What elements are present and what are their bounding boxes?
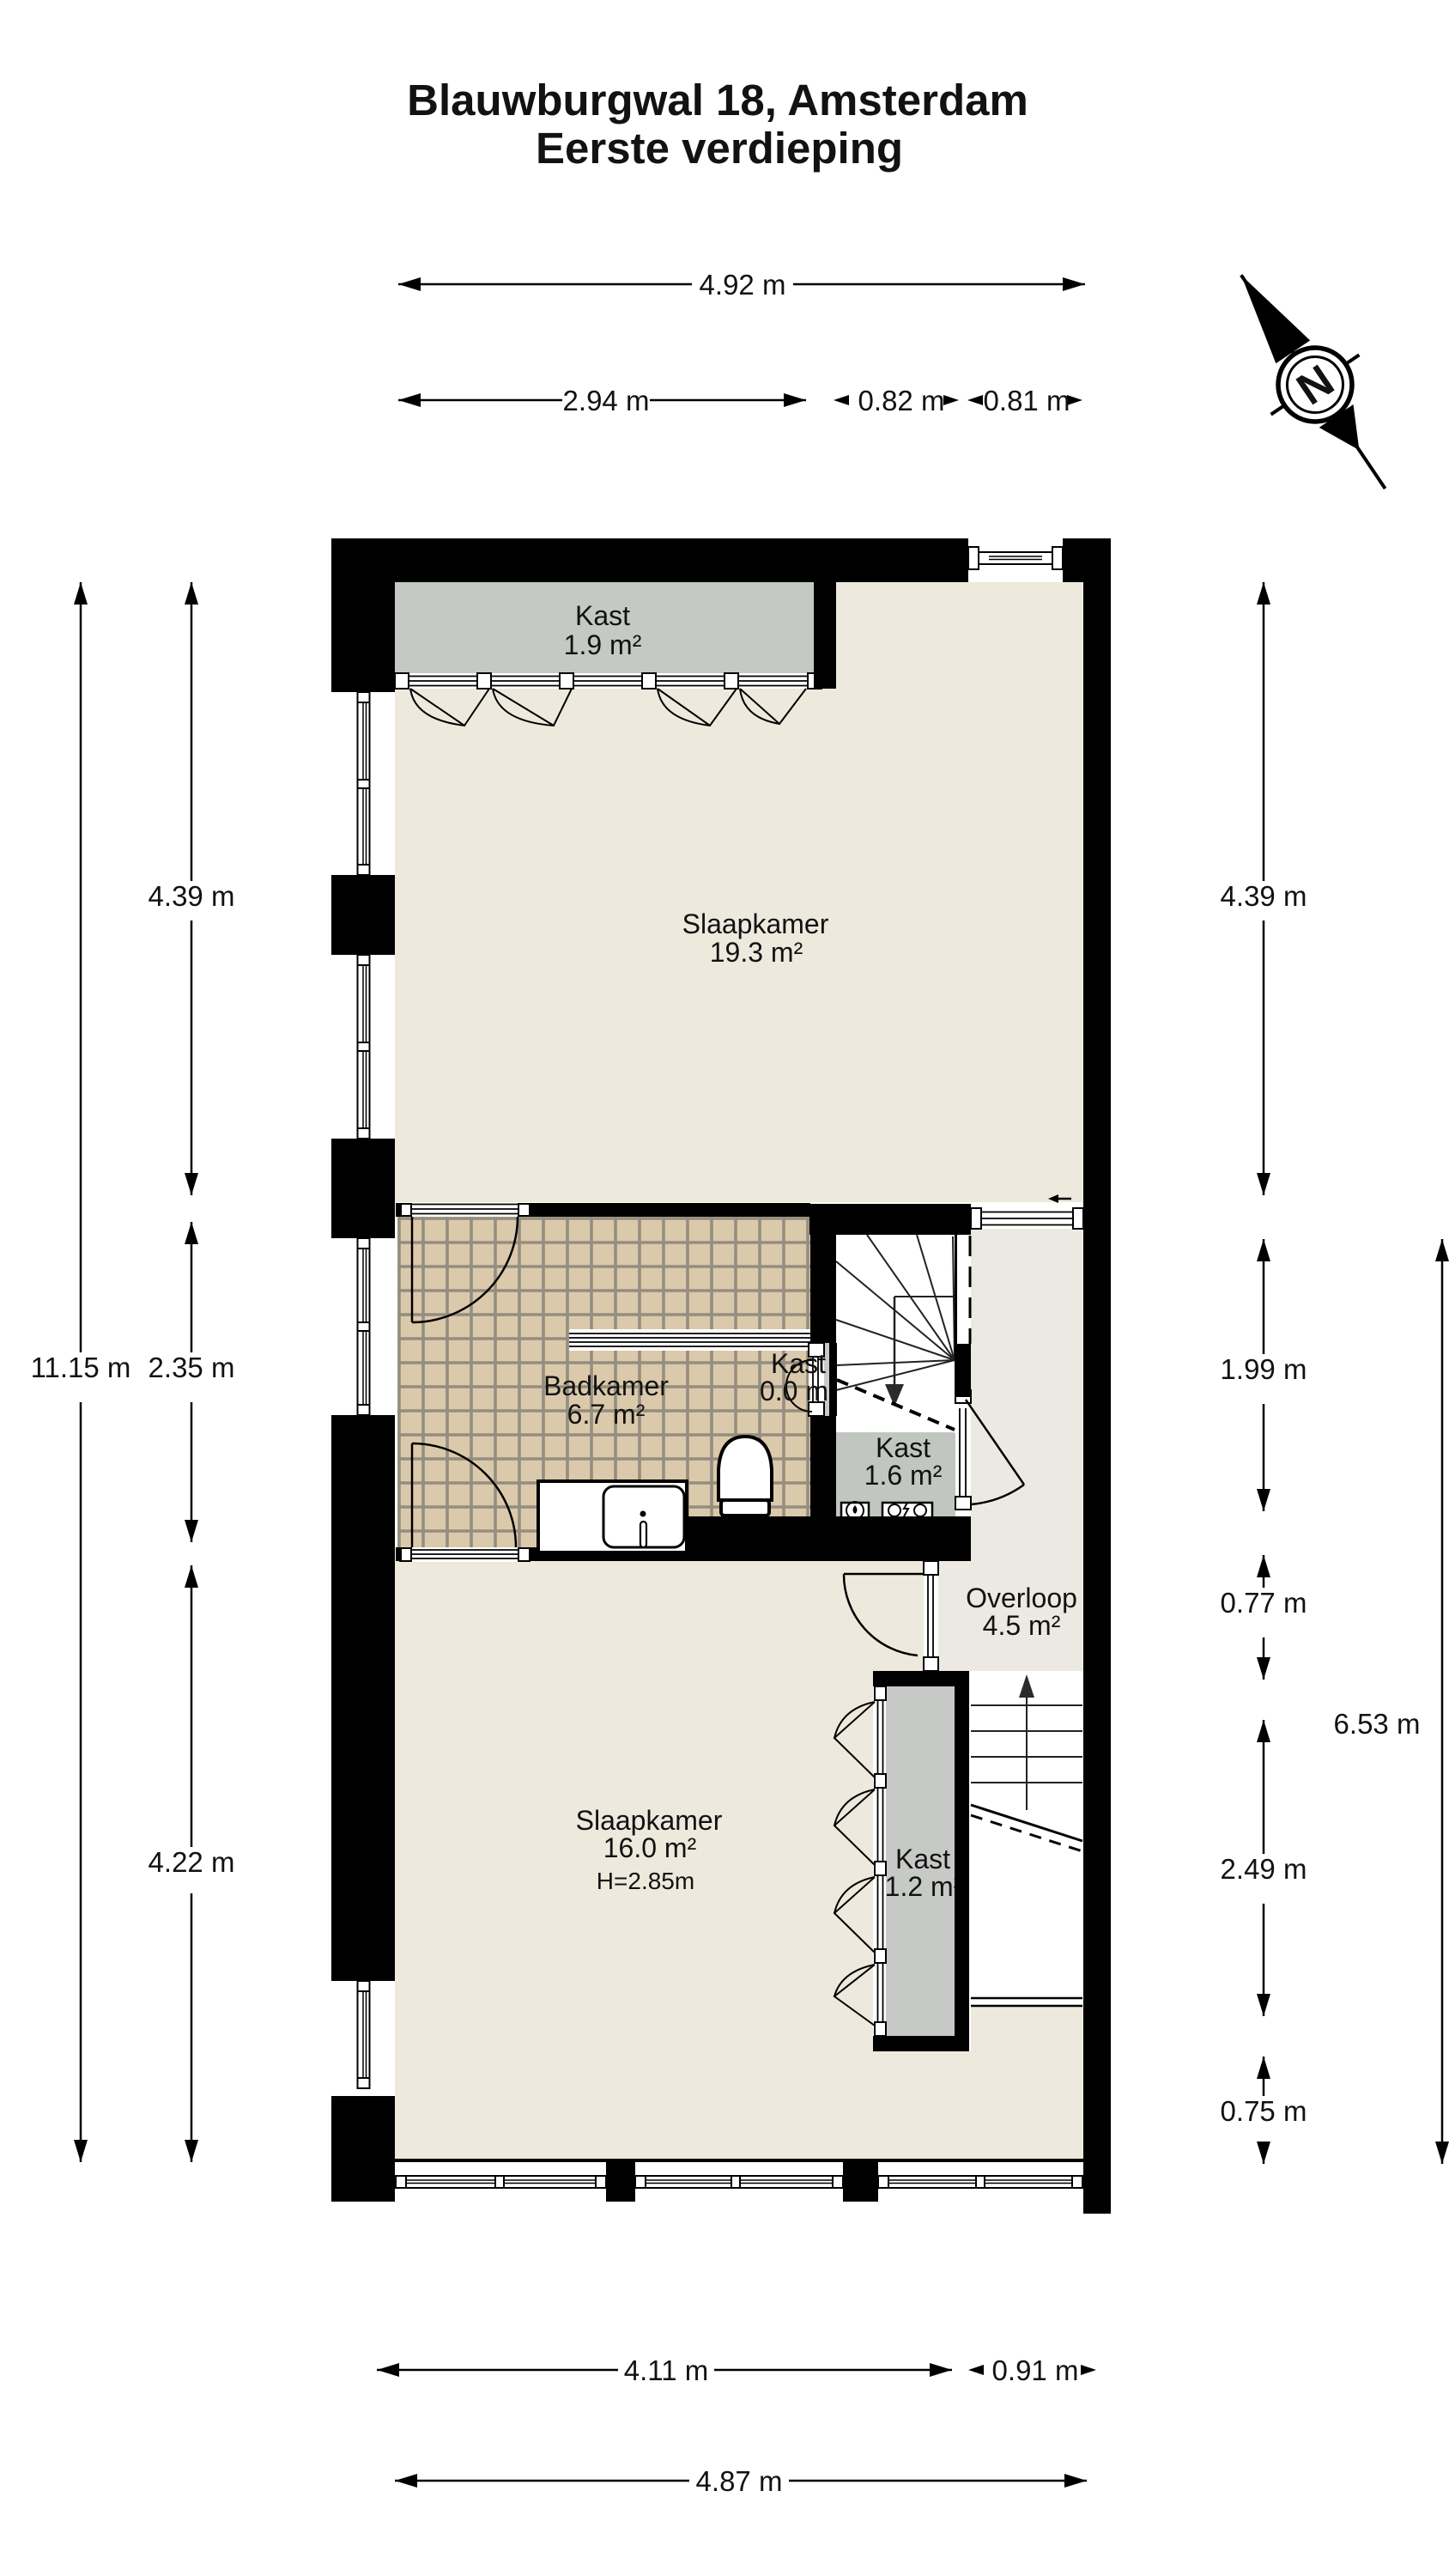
svg-text:Blauwburgwal 18, Amsterdam: Blauwburgwal 18, Amsterdam	[407, 76, 1028, 125]
svg-text:6.7 m²: 6.7 m²	[567, 1399, 646, 1430]
svg-text:0.77 m: 0.77 m	[1221, 1587, 1307, 1619]
svg-text:1.6 m²: 1.6 m²	[864, 1460, 943, 1491]
svg-text:Badkamer: Badkamer	[543, 1370, 669, 1401]
svg-text:0.0 m: 0.0 m	[760, 1376, 828, 1406]
svg-text:0.82 m: 0.82 m	[858, 385, 945, 416]
svg-text:H=2.85m: H=2.85m	[597, 1868, 694, 1894]
svg-text:19.3 m²: 19.3 m²	[710, 937, 803, 968]
svg-text:4.92 m: 4.92 m	[700, 269, 786, 301]
svg-text:4.5 m²: 4.5 m²	[983, 1610, 1061, 1641]
svg-text:2.49 m: 2.49 m	[1221, 1853, 1307, 1885]
svg-text:2.94 m: 2.94 m	[563, 385, 650, 416]
svg-text:Overloop: Overloop	[966, 1583, 1077, 1613]
svg-text:0.91 m: 0.91 m	[992, 2354, 1079, 2386]
svg-text:4.87 m: 4.87 m	[696, 2465, 783, 2497]
svg-text:4.22 m: 4.22 m	[149, 1846, 235, 1878]
svg-text:1.99 m: 1.99 m	[1221, 1353, 1307, 1385]
svg-text:Kast: Kast	[771, 1348, 826, 1379]
svg-text:Eerste verdieping: Eerste verdieping	[536, 124, 903, 173]
svg-text:2.35 m: 2.35 m	[149, 1352, 235, 1383]
svg-text:4.39 m: 4.39 m	[149, 880, 235, 912]
svg-text:0.75 m: 0.75 m	[1221, 2095, 1307, 2127]
svg-text:Kast: Kast	[895, 1844, 950, 1874]
svg-text:Kast: Kast	[575, 600, 630, 631]
svg-text:1.9 m²: 1.9 m²	[564, 629, 642, 660]
svg-text:4.11 m: 4.11 m	[624, 2354, 708, 2386]
svg-text:6.53 m: 6.53 m	[1334, 1708, 1421, 1740]
svg-text:Slaapkamer: Slaapkamer	[682, 908, 829, 939]
svg-text:Slaapkamer: Slaapkamer	[576, 1805, 723, 1836]
svg-text:11.15 m: 11.15 m	[31, 1352, 131, 1383]
svg-text:1.2 m²: 1.2 m²	[885, 1871, 963, 1902]
svg-text:Kast: Kast	[876, 1432, 931, 1463]
svg-text:16.0 m²: 16.0 m²	[603, 1832, 697, 1863]
svg-text:4.39 m: 4.39 m	[1221, 880, 1307, 912]
svg-text:0.81 m: 0.81 m	[984, 385, 1070, 416]
